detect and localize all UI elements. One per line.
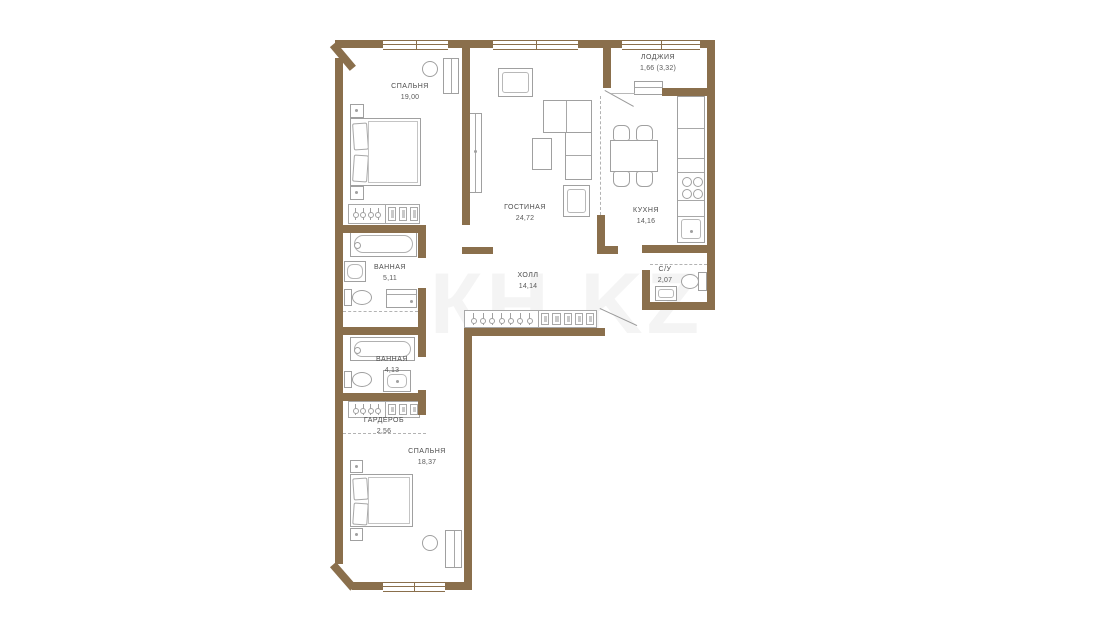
- room-name: ГОСТИНАЯ: [504, 204, 546, 211]
- room-name: СПАЛЬНЯ: [408, 448, 446, 455]
- loggia-bench: [634, 81, 663, 95]
- wall-loggia-left: [603, 40, 611, 88]
- mattress: [368, 121, 418, 183]
- dashed-living-kitchen-boundary: [600, 96, 601, 215]
- coffee-table: [532, 138, 552, 170]
- bathtub: [350, 231, 417, 257]
- hanger-section: [349, 402, 386, 417]
- stove-burner: [693, 189, 703, 199]
- toilet-tank: [344, 289, 352, 306]
- label-bedroom-1: СПАЛЬНЯ 19,00: [391, 82, 429, 104]
- bed: [350, 474, 413, 527]
- stove-burner: [682, 177, 692, 187]
- stove-burner: [693, 177, 703, 187]
- room-area: 19,00: [391, 93, 429, 104]
- label-kitchen: КУХНЯ 14,16: [633, 206, 659, 228]
- room-name: КУХНЯ: [633, 207, 659, 214]
- dresser: [445, 530, 462, 568]
- wall-top: [448, 40, 493, 48]
- wall-top: [335, 40, 383, 48]
- wall-bath1-corridor: [418, 233, 426, 258]
- washing-machine: [386, 289, 417, 308]
- room-name: ВАННАЯ: [376, 356, 408, 363]
- hanger-section: [465, 311, 539, 327]
- sofa-vertical-arm: [565, 132, 592, 180]
- wall-wc-left: [642, 270, 650, 310]
- pillow: [352, 123, 369, 151]
- label-bathroom-2: ВАННАЯ 4,13: [376, 355, 408, 377]
- hall-closet-strip: [464, 310, 597, 328]
- label-living-room: ГОСТИНАЯ 24,72: [504, 203, 546, 225]
- closet-strip: [348, 204, 420, 224]
- armchair: [563, 185, 590, 217]
- tv-unit: [468, 113, 482, 193]
- room-name: ГАРДЕРОБ: [364, 417, 404, 424]
- kitchen-sink: [681, 219, 701, 239]
- balcony-threshold-line: [611, 93, 635, 94]
- plant-icon: [422, 61, 438, 77]
- window-living: [493, 40, 578, 50]
- room-area: 14,14: [518, 282, 539, 293]
- window-loggia: [622, 40, 700, 50]
- toilet-tank: [698, 272, 707, 291]
- room-area: 2,07: [658, 276, 672, 287]
- window-bedroom2: [383, 582, 445, 592]
- armchair: [498, 68, 533, 97]
- nightstand: [350, 460, 363, 473]
- wall-bath2-wardrobe: [335, 393, 426, 401]
- room-name: ВАННАЯ: [374, 264, 406, 271]
- kitchen-counter: [677, 96, 705, 243]
- room-area: 4,13: [376, 366, 408, 377]
- room-area: 1,66 (3,32): [640, 64, 676, 75]
- wall-bath1-bath2: [335, 327, 426, 335]
- bed: [350, 118, 421, 186]
- wall-right-lower-wing: [464, 336, 472, 590]
- toilet-tank: [344, 371, 352, 388]
- room-area: 18,37: [408, 458, 446, 469]
- kitchen-table: [610, 140, 658, 172]
- label-bedroom-2: СПАЛЬНЯ 18,37: [408, 447, 446, 469]
- room-name: ЛОДЖИЯ: [641, 54, 675, 61]
- pillow: [352, 155, 369, 183]
- nightstand: [350, 186, 364, 200]
- wall-bottom-right: [642, 302, 715, 310]
- label-wardrobe: ГАРДЕРОБ 2,56: [364, 416, 404, 438]
- hanger-section: [349, 205, 386, 223]
- bathroom-sink: [344, 261, 366, 282]
- room-area: 5,11: [374, 274, 406, 285]
- wc-sink: [655, 286, 677, 301]
- chair: [613, 171, 630, 187]
- label-loggia: ЛОДЖИЯ 1,66 (3,32): [640, 53, 676, 75]
- room-area: 2,56: [364, 427, 404, 438]
- toilet-bowl: [681, 274, 699, 289]
- room-name: ХОЛЛ: [518, 272, 539, 279]
- room-name: СПАЛЬНЯ: [391, 83, 429, 90]
- nightstand: [350, 528, 363, 541]
- mattress: [368, 477, 410, 524]
- chair: [613, 125, 630, 141]
- room-area: 24,72: [504, 214, 546, 225]
- sofa-horizontal-arm: [543, 100, 592, 133]
- dresser: [443, 58, 459, 94]
- wall-left: [335, 58, 343, 564]
- wall-hall-bottom: [464, 328, 605, 336]
- wall-bottom: [352, 582, 383, 590]
- label-wc: С/У 2,07: [658, 265, 672, 287]
- chair: [636, 125, 653, 141]
- wall-bedroom1-living: [462, 48, 470, 225]
- wall-loggia-kitchen: [662, 88, 707, 96]
- label-hall: ХОЛЛ 14,14: [518, 271, 539, 293]
- label-bathroom-1: ВАННАЯ 5,11: [374, 263, 406, 285]
- sink-faucet: [690, 230, 693, 233]
- shelf-section: [539, 311, 596, 327]
- wall-bath1-corridor: [418, 288, 426, 327]
- shelf-section: [386, 205, 419, 223]
- toilet-bowl: [352, 372, 372, 387]
- pillow: [352, 478, 368, 501]
- wall-top: [578, 40, 622, 48]
- chair: [636, 171, 653, 187]
- wall-kitchen-hall-foot: [597, 246, 618, 254]
- window-bedroom1: [383, 40, 448, 50]
- wall-kitchen-wc: [642, 245, 715, 253]
- toilet-bowl: [352, 290, 372, 305]
- wall-right: [707, 40, 715, 310]
- wall-hall-stub: [462, 247, 493, 254]
- nightstand: [350, 104, 364, 118]
- shelf-section: [386, 402, 419, 417]
- dashed-bath1: [343, 311, 418, 312]
- stove-burner: [682, 189, 692, 199]
- pillow: [352, 503, 368, 526]
- room-area: 14,16: [633, 217, 659, 228]
- room-name: С/У: [659, 266, 672, 273]
- wall-bath2-corridor: [418, 335, 426, 357]
- plant-icon: [422, 535, 438, 551]
- wall-bedroom1-bath1: [335, 225, 426, 233]
- floor-plan: КН.KZ: [0, 0, 1117, 628]
- wall-wardrobe-corridor: [418, 401, 426, 415]
